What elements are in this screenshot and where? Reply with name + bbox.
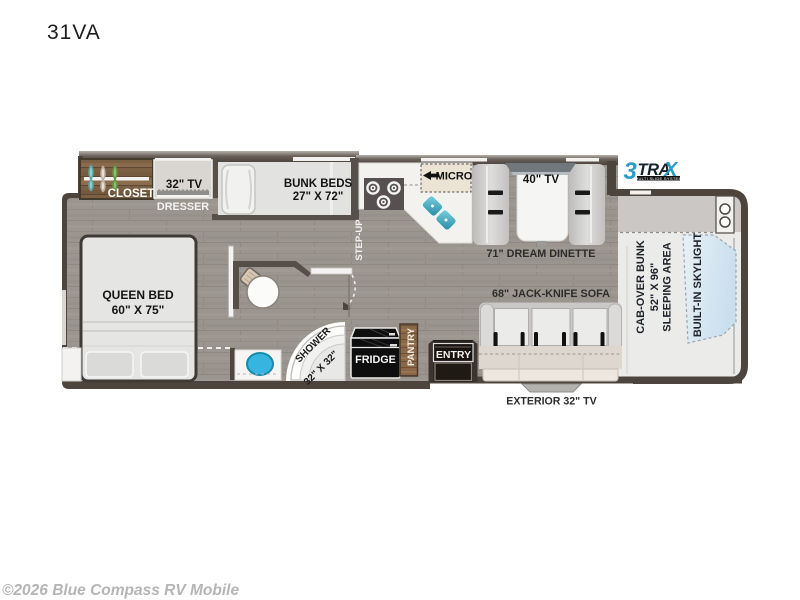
svg-text:40" TV: 40" TV <box>523 174 559 186</box>
svg-text:MULTI SLIDE SYSTEM: MULTI SLIDE SYSTEM <box>635 176 682 181</box>
svg-text:ENTRY: ENTRY <box>436 349 471 361</box>
svg-text:CAB-OVER BUNK: CAB-OVER BUNK <box>635 240 647 334</box>
svg-text:BUNK BEDS: BUNK BEDS <box>284 178 353 190</box>
svg-text:71" DREAM DINETTE: 71" DREAM DINETTE <box>487 248 596 260</box>
svg-text:68" JACK-KNIFE SOFA: 68" JACK-KNIFE SOFA <box>492 288 610 300</box>
svg-text:27" X 72": 27" X 72" <box>293 191 344 203</box>
svg-text:MICRO: MICRO <box>436 171 473 183</box>
svg-text:FRIDGE: FRIDGE <box>355 354 396 366</box>
svg-text:SLEEPING AREA: SLEEPING AREA <box>662 242 674 331</box>
svg-text:DRESSER: DRESSER <box>157 201 209 213</box>
svg-text:PANTRY: PANTRY <box>406 327 417 366</box>
svg-text:BUILT-IN SKYLIGHT: BUILT-IN SKYLIGHT <box>692 233 704 338</box>
svg-text:31VA: 31VA <box>47 21 101 44</box>
svg-text:52" X 96": 52" X 96" <box>649 263 661 311</box>
svg-text:EXTERIOR 32" TV: EXTERIOR 32" TV <box>506 396 596 408</box>
svg-text:QUEEN BED: QUEEN BED <box>102 288 174 302</box>
svg-text:©2026 Blue Compass RV Mobile: ©2026 Blue Compass RV Mobile <box>2 582 239 599</box>
svg-text:32" TV: 32" TV <box>166 179 202 191</box>
svg-text:STEP-UP: STEP-UP <box>354 219 365 261</box>
svg-text:60" X 75": 60" X 75" <box>112 303 165 317</box>
svg-text:CLOSET: CLOSET <box>108 188 155 200</box>
